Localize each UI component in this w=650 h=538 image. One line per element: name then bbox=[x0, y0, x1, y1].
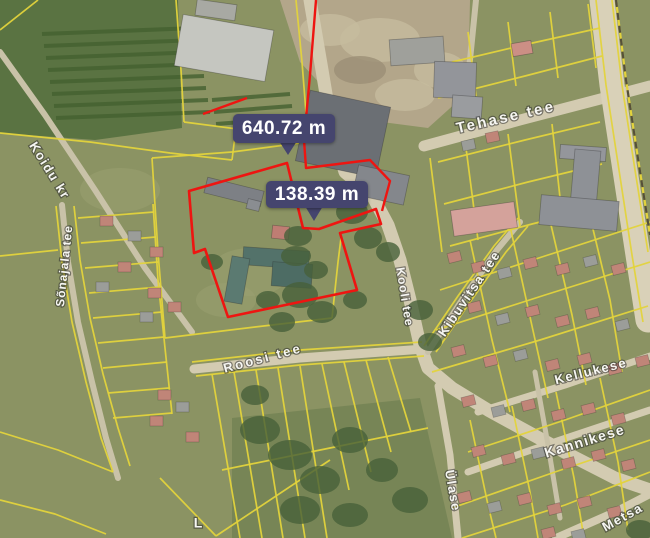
house bbox=[150, 416, 163, 426]
distance-badge-total: 640.72 m bbox=[233, 114, 335, 143]
tree bbox=[307, 301, 337, 323]
tree bbox=[280, 496, 320, 524]
tree bbox=[304, 261, 328, 279]
tree bbox=[332, 427, 368, 453]
house bbox=[140, 312, 153, 322]
house bbox=[96, 282, 109, 292]
building bbox=[433, 61, 476, 98]
tree bbox=[343, 291, 367, 309]
house bbox=[128, 231, 141, 241]
dirt-blob bbox=[334, 56, 386, 84]
tree bbox=[366, 458, 398, 482]
house bbox=[100, 216, 113, 226]
tree bbox=[268, 440, 312, 470]
distance-badge-segment-label: 138.39 m bbox=[275, 184, 359, 206]
house bbox=[168, 302, 181, 312]
house bbox=[118, 262, 131, 272]
tree bbox=[241, 385, 269, 405]
house bbox=[150, 247, 163, 257]
tree bbox=[269, 312, 295, 332]
map-canvas[interactable]: Tehase teeKoidu krSõnajala teeRoosi teeK… bbox=[0, 0, 650, 538]
house bbox=[148, 288, 161, 298]
tree bbox=[376, 242, 400, 262]
map-viewport: Tehase teeKoidu krSõnajala teeRoosi teeK… bbox=[0, 0, 650, 538]
distance-badge-total-label: 640.72 m bbox=[242, 118, 326, 140]
house bbox=[158, 390, 171, 400]
tree bbox=[300, 466, 340, 494]
tree bbox=[281, 246, 311, 266]
tree bbox=[392, 487, 428, 513]
distance-badge-segment: 138.39 m bbox=[266, 181, 368, 208]
tree bbox=[332, 503, 368, 527]
house bbox=[176, 402, 189, 412]
house bbox=[186, 432, 199, 442]
building bbox=[539, 195, 619, 232]
street-label-partial-l: L bbox=[194, 515, 203, 531]
tree bbox=[240, 416, 280, 444]
tree bbox=[418, 333, 442, 351]
